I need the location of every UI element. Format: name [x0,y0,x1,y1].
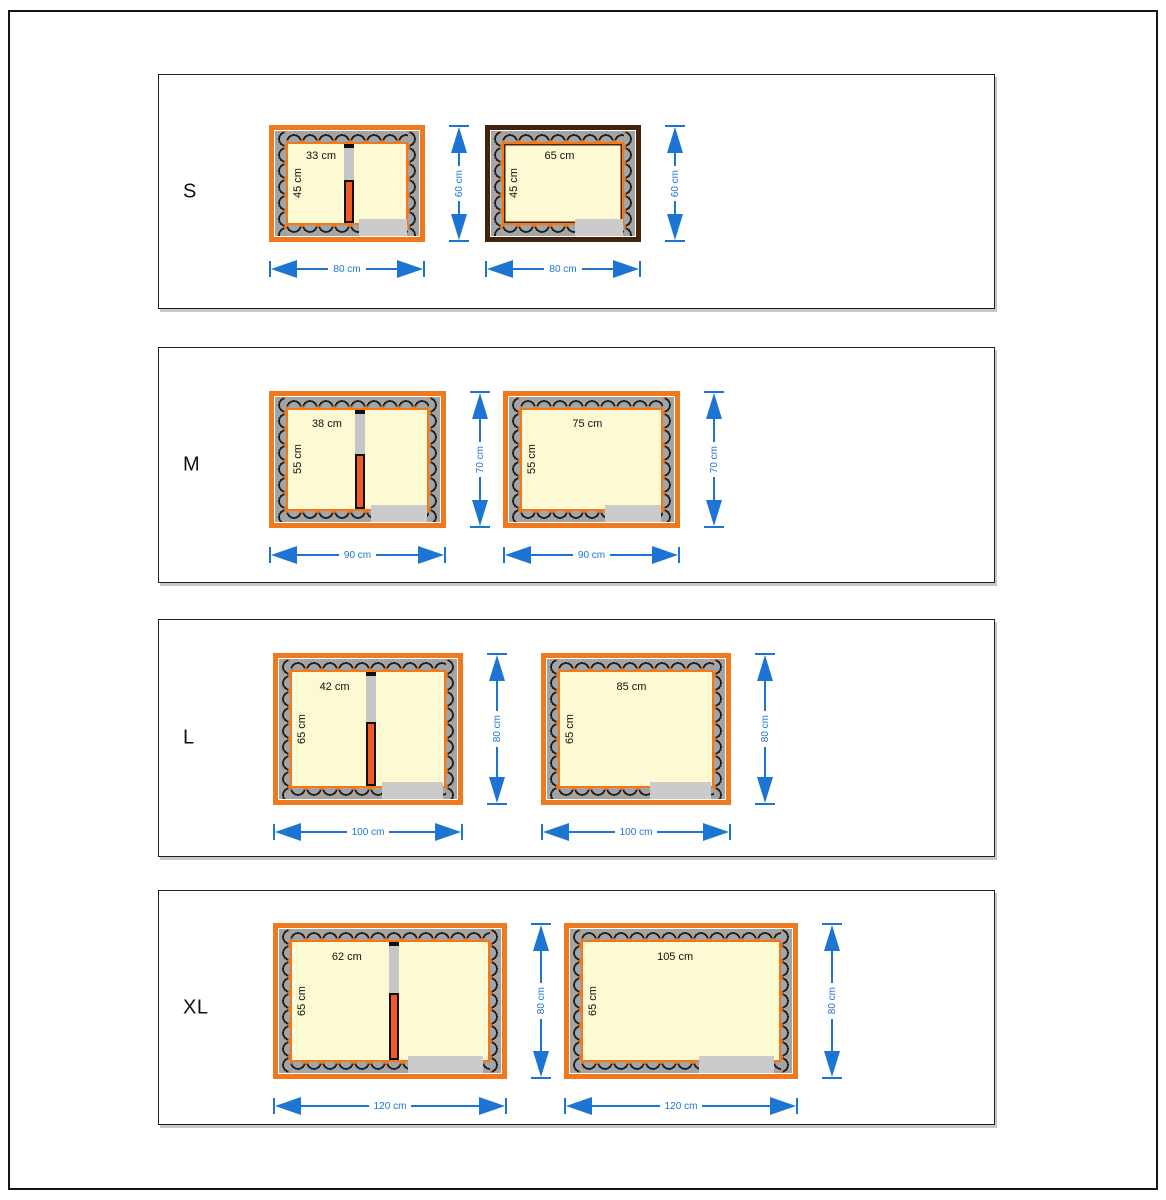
interior-width-label: 75 cm [572,418,602,430]
dimension-line [389,831,435,833]
dimension-tick [449,240,469,242]
dimension-tick [665,240,685,242]
wall-left [547,659,558,799]
dimension-tick [796,1098,798,1114]
wall-right [429,397,440,522]
width-dimension-label: 80 cm [549,264,576,275]
interior-height-label: 65 cm [587,942,599,1060]
interior-height-label: 65 cm [296,672,308,786]
interior-width-label: 42 cm [320,681,350,693]
arrow-right-icon [479,1097,505,1115]
height-dimension: 80 cm [747,653,783,805]
interior-area: 65 cm 45 cm [502,142,624,225]
wall-right [781,929,792,1073]
interior-area: 33 cm 45 cm [286,142,408,225]
height-dimension: 80 cm [523,923,559,1079]
width-dimension: 90 cm [269,540,446,570]
dimension-line [764,747,766,777]
wall-right [663,397,674,522]
divider-partition [344,144,354,223]
panel-s: S 33 cm 45 cm [158,74,995,309]
wall-right [714,659,725,799]
divider-orange-section [366,722,376,786]
height-dimension-label: 80 cm [827,987,838,1014]
arrow-up-icon [706,393,722,419]
width-dimension-label: 90 cm [344,550,371,561]
entrance-opening [359,219,408,236]
height-dimension-label: 60 cm [454,170,465,197]
panel-m: M 38 cm 55 cm [158,347,995,583]
arrow-down-icon [667,214,683,240]
height-dimension-label: 60 cm [670,170,681,197]
wall-top [286,131,408,142]
wall-right [408,131,419,236]
arrow-up-icon [451,127,467,153]
floor-plan: 65 cm 45 cm [485,125,641,242]
dimension-line [297,554,339,556]
dimension-line [479,419,481,442]
dimension-tick [678,547,680,563]
arrow-right-icon [397,260,423,278]
panel-label-l: L [183,727,195,750]
dimension-tick [505,1098,507,1114]
arrow-down-icon [533,1051,549,1077]
height-dimension-label: 80 cm [492,715,503,742]
arrow-right-icon [418,546,444,564]
floor-plan: 75 cm 55 cm [503,391,680,528]
dimension-tick [755,803,775,805]
floor-plan: 85 cm 65 cm [541,653,731,805]
wall-left [275,397,286,522]
width-dimension: 120 cm [564,1091,798,1121]
wall-right [624,131,635,236]
entrance-opening [699,1056,774,1073]
width-dimension: 120 cm [273,1091,507,1121]
wall-top [286,397,429,408]
interior-height-label: 55 cm [526,410,538,509]
dimension-line [569,831,615,833]
height-dimension-label: 80 cm [760,715,771,742]
wall-left [491,131,502,236]
height-dimension: 80 cm [814,923,850,1079]
width-dimension: 100 cm [273,817,463,847]
width-dimension: 80 cm [269,254,425,284]
arrow-right-icon [435,823,461,841]
entrance-opening [575,219,624,236]
floor-plan: 33 cm 45 cm [269,125,425,242]
entrance-opening [650,782,711,799]
dimension-tick [487,803,507,805]
interior-width-label: 65 cm [544,150,574,162]
floor-plan: 42 cm 65 cm [273,653,463,805]
dimension-line [592,1105,660,1107]
width-dimension-label: 100 cm [620,827,653,838]
dimension-tick [531,1077,551,1079]
dimension-tick [639,261,641,277]
interior-width-label: 33 cm [306,150,336,162]
s-left-diagram: 33 cm 45 cm 60 cm [269,125,425,242]
arrow-down-icon [706,500,722,526]
dimension-tick [444,547,446,563]
dimension-line [513,268,544,270]
arrow-left-icon [275,1097,301,1115]
entrance-opening [408,1056,483,1073]
panel-l: L 42 cm 65 cm [158,619,995,857]
dimension-line [540,1019,542,1051]
interior-height-label: 45 cm [292,144,304,223]
floor-plan: 62 cm 65 cm [273,923,507,1079]
interior-width-label: 105 cm [657,951,693,963]
wall-left [275,131,286,236]
divider-partition [355,410,365,509]
interior-height-label: 55 cm [292,410,304,509]
dimension-line [713,477,715,500]
panel-label-xl: XL [183,996,208,1019]
l-right-diagram: 85 cm 65 cm 80 cm 100 cm [541,653,731,805]
dimension-line [301,1105,369,1107]
interior-width-label: 62 cm [332,951,362,963]
s-right-diagram: 65 cm 45 cm 60 cm 80 cm [485,125,641,242]
dimension-line [713,419,715,442]
wall-left [509,397,520,522]
arrow-right-icon [770,1097,796,1115]
dimension-line [831,951,833,983]
arrow-up-icon [533,925,549,951]
l-left-diagram: 42 cm 65 cm 80 cm [273,653,463,805]
interior-area: 105 cm 65 cm [581,940,781,1062]
dimension-line [366,268,397,270]
wall-top [290,659,446,670]
interior-height-label: 65 cm [564,672,576,786]
width-dimension-label: 120 cm [374,1101,407,1112]
dimension-line [301,831,347,833]
height-dimension: 60 cm [441,125,477,242]
wall-left [279,659,290,799]
wall-top [520,397,663,408]
dimension-line [702,1105,770,1107]
dimension-tick [704,526,724,528]
height-dimension: 60 cm [657,125,693,242]
arrow-left-icon [543,823,569,841]
wall-top [581,929,781,940]
width-dimension: 100 cm [541,817,731,847]
height-dimension-label: 80 cm [536,987,547,1014]
floor-plan: 105 cm 65 cm [564,923,798,1079]
dimension-line [297,268,328,270]
width-dimension-label: 100 cm [352,827,385,838]
interior-area: 85 cm 65 cm [558,670,714,788]
arrow-left-icon [271,260,297,278]
wall-top [290,929,490,940]
dimension-tick [822,1077,842,1079]
interior-width-label: 38 cm [312,418,342,430]
panel-xl: XL 62 cm 65 cm [158,890,995,1125]
arrow-up-icon [472,393,488,419]
dimension-tick [729,824,731,840]
arrow-right-icon [613,260,639,278]
dimension-line [831,1019,833,1051]
dimension-line [496,747,498,777]
divider-gray-section [344,148,354,180]
interior-width-label: 85 cm [616,681,646,693]
dimension-line [540,951,542,983]
width-dimension-label: 90 cm [578,550,605,561]
interior-height-label: 45 cm [508,144,520,223]
dimension-line [610,554,652,556]
height-dimension: 70 cm [462,391,498,528]
arrow-up-icon [489,655,505,681]
m-left-diagram: 38 cm 55 cm 70 cm [269,391,446,528]
dimension-line [582,268,613,270]
dimension-line [531,554,573,556]
dimension-line [657,831,703,833]
width-dimension-label: 80 cm [333,264,360,275]
arrow-left-icon [275,823,301,841]
arrow-down-icon [757,777,773,803]
panel-label-s: S [183,180,197,203]
wall-top [502,131,624,142]
height-dimension: 70 cm [696,391,732,528]
height-dimension-label: 70 cm [475,446,486,473]
divider-gray-section [355,414,365,454]
arrow-down-icon [824,1051,840,1077]
arrow-left-icon [487,260,513,278]
panel-label-m: M [183,454,200,477]
interior-area: 62 cm 65 cm [290,940,490,1062]
arrow-up-icon [667,127,683,153]
interior-area: 75 cm 55 cm [520,408,663,511]
wall-left [570,929,581,1073]
arrow-down-icon [489,777,505,803]
interior-area: 42 cm 65 cm [290,670,446,788]
width-dimension: 80 cm [485,254,641,284]
interior-area: 38 cm 55 cm [286,408,429,511]
wall-right [490,929,501,1073]
dimension-line [674,201,676,214]
arrow-right-icon [703,823,729,841]
divider-partition [389,942,399,1060]
arrow-left-icon [566,1097,592,1115]
dimension-tick [423,261,425,277]
xl-left-diagram: 62 cm 65 cm 80 cm [273,923,507,1079]
width-dimension: 90 cm [503,540,680,570]
arrow-down-icon [472,500,488,526]
divider-gray-section [366,676,376,722]
dimension-line [376,554,418,556]
wall-top [558,659,714,670]
dimension-line [458,153,460,166]
entrance-opening [605,505,661,522]
divider-partition [366,672,376,786]
dimension-line [496,681,498,711]
divider-orange-section [389,993,399,1060]
dimension-line [764,681,766,711]
m-right-diagram: 75 cm 55 cm 70 cm 90 cm [503,391,680,528]
dimension-line [458,201,460,214]
arrow-left-icon [505,546,531,564]
width-dimension-label: 120 cm [665,1101,698,1112]
arrow-left-icon [271,546,297,564]
arrow-up-icon [757,655,773,681]
wall-left [279,929,290,1073]
divider-orange-section [344,180,354,223]
arrow-up-icon [824,925,840,951]
dimension-line [479,477,481,500]
arrow-down-icon [451,214,467,240]
xl-right-diagram: 105 cm 65 cm 80 cm 120 cm [564,923,798,1079]
dimension-tick [470,526,490,528]
entrance-opening [371,505,427,522]
interior-height-label: 65 cm [296,942,308,1060]
dimension-tick [461,824,463,840]
dimension-line [411,1105,479,1107]
divider-orange-section [355,454,365,509]
divider-gray-section [389,946,399,993]
dimension-line [674,153,676,166]
floor-plan: 38 cm 55 cm [269,391,446,528]
height-dimension: 80 cm [479,653,515,805]
wall-right [446,659,457,799]
arrow-right-icon [652,546,678,564]
entrance-opening [382,782,443,799]
height-dimension-label: 70 cm [709,446,720,473]
